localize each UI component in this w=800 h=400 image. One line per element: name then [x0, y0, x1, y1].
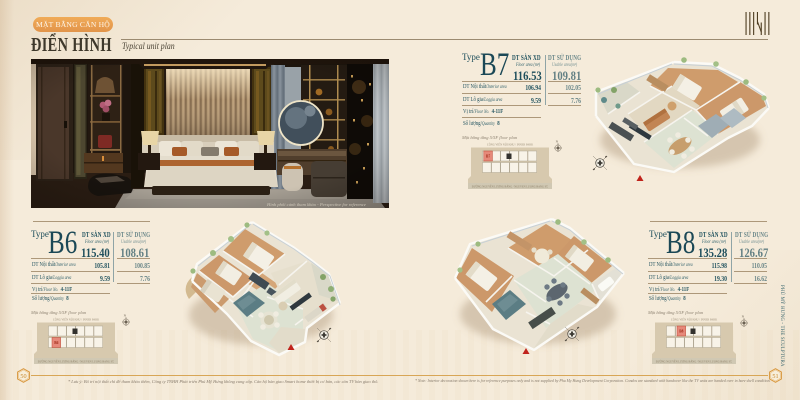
svg-text:ĐƯỜNG NGUYỄN LƯƠNG BẰNG / NGUY: ĐƯỜNG NGUYỄN LƯƠNG BẰNG / NGUYEN LUONG B…: [38, 361, 115, 364]
svg-text:CÔNG VIÊN NỘI KHU / INNER PARK: CÔNG VIÊN NỘI KHU / INNER PARK: [671, 319, 717, 322]
svg-text:50: 50: [20, 373, 26, 380]
svg-text:ĐƯỜNG NGUYỄN LƯƠNG BẰNG / NGUY: ĐƯỜNG NGUYỄN LƯƠNG BẰNG / NGUYEN LUONG B…: [656, 361, 733, 364]
svg-text:B6: B6: [54, 341, 58, 345]
svg-text:51: 51: [772, 373, 778, 380]
svg-text:B8: B8: [679, 330, 683, 334]
svg-text:Hình phối cảnh tham khảo - Per: Hình phối cảnh tham khảo - Perspective f…: [266, 202, 366, 207]
svg-text:CÔNG VIÊN NỘI KHU / INNER PARK: CÔNG VIÊN NỘI KHU / INNER PARK: [487, 144, 533, 147]
svg-text:ĐƯỜNG NGUYỄN LƯƠNG BẰNG / NGUY: ĐƯỜNG NGUYỄN LƯƠNG BẰNG / NGUYEN LUONG B…: [472, 186, 549, 189]
svg-text:B7: B7: [486, 155, 490, 159]
svg-text:CÔNG VIÊN NỘI KHU / INNER PARK: CÔNG VIÊN NỘI KHU / INNER PARK: [53, 319, 99, 322]
